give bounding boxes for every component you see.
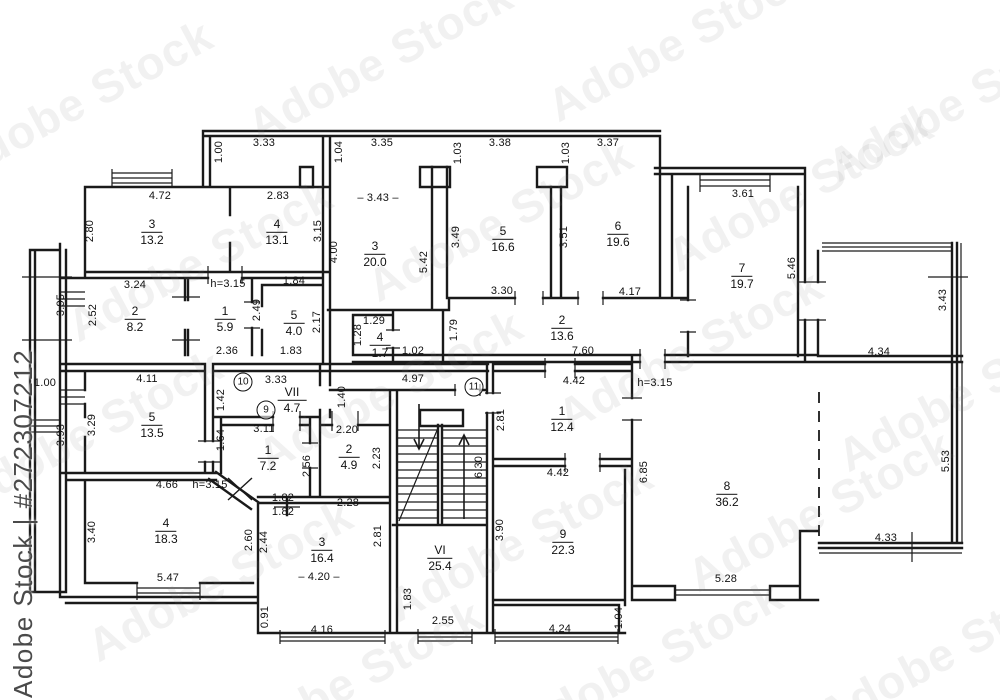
room-number: 7 [732,262,753,277]
dimension-label: 5.46 [786,257,798,279]
node-marker: 10 [234,373,253,392]
room-area: 19.7 [730,277,753,291]
room-number: 1 [215,305,236,320]
dimension-label: 1.28 [352,324,364,346]
room-label: 320.0 [363,238,386,268]
room-number: 1 [552,405,573,420]
dimension-label: 1.00 [213,141,225,163]
dimension-label: 4.42 [563,375,585,387]
dimension-label: 3.90 [494,519,506,541]
dimension-label: 5.42 [418,251,430,273]
room-area: 4.7 [278,401,307,415]
dimension-label: 2.83 [267,190,289,202]
room-area: 20.0 [363,255,386,269]
dimension-label: 3.49 [450,226,462,248]
dimension-label: 1.29 [363,315,385,327]
node-marker: 11 [465,378,484,397]
dimension-label: 2.55 [432,615,454,627]
dimension-label: 1.04 [613,607,625,629]
room-number: 8 [717,480,738,495]
room-label: 313.2 [140,216,163,246]
room-number: 1 [258,444,279,459]
room-label: 28.2 [125,303,146,333]
dimension-label: 4.11 [136,373,157,385]
dimension-label: 6.85 [638,461,650,483]
room-area: 4.9 [339,458,360,472]
room-area: 25.4 [427,559,452,573]
dimension-label: 1.04 [333,141,345,163]
room-label: 418.3 [154,515,177,545]
dimension-label: 3.51 [558,226,570,248]
dimension-label: 2.28 [337,497,359,509]
room-number: 3 [365,240,386,255]
dimension-label: – 3.43 – [357,192,398,204]
dimension-label: 1.64 [215,429,227,451]
dimension-label: 1.03 [560,142,572,164]
dimension-label: 2.36 [216,345,238,357]
dimension-label: 2.20 [336,424,358,436]
room-label: 619.6 [606,218,629,248]
dimension-label: – 4.20 – [298,571,339,583]
room-area: 18.3 [154,532,177,546]
label-layer: 3.331.003.351.043.381.033.371.034.722.83… [0,0,1000,700]
dimension-label: 4.24 [549,623,571,635]
room-number: 3 [142,218,163,233]
dimension-label: 3.33 [253,137,275,149]
room-number: 2 [552,314,573,329]
dimension-label: 2.81 [372,525,384,547]
dimension-label: 2.23 [371,447,383,469]
room-area: 5.9 [215,320,236,334]
room-area: 13.5 [140,426,163,440]
room-label: VII4.7 [278,384,307,414]
dimension-label: 1.83 [280,345,302,357]
dimension-label: 2.44 [258,531,270,553]
room-label: 213.6 [550,312,573,342]
dimension-label: 4.72 [149,190,171,202]
dimension-label: 1.02 [402,345,424,357]
dimension-label: 1.03 [452,142,464,164]
room-area: 16.6 [491,240,514,254]
room-label: VI25.4 [427,542,452,572]
dimension-label: 4.17 [619,286,641,298]
room-number: 4 [156,517,177,532]
dimension-label: 0.91 [259,606,271,628]
dimension-label: 1.79 [448,319,460,341]
room-area: 13.1 [265,233,288,247]
room-area: 13.2 [140,233,163,247]
room-label: 513.5 [140,409,163,439]
room-number: 2 [339,443,360,458]
dimension-label: 3.37 [597,137,619,149]
dimension-label: 1.83 [402,588,414,610]
dimension-label: h=3.15 [637,377,672,389]
dimension-label: 4.42 [547,467,569,479]
room-number: 5 [142,411,163,426]
dimension-label: 3.95 [55,294,67,316]
room-number: 5 [284,309,305,324]
dimension-label: 3.29 [86,414,98,436]
dimension-label: 1.84 [283,275,305,287]
room-area: 7.2 [258,459,279,473]
room-label: 24.9 [339,441,360,471]
dimension-label: 4.16 [311,624,333,636]
dimension-label: 1.82 [272,506,294,518]
room-area: 16.4 [310,551,333,565]
dimension-label: h=3.15 [192,479,227,491]
room-label: 316.4 [310,534,333,564]
room-label: 922.3 [551,526,574,556]
room-area: 8.2 [125,320,146,334]
room-number: 3 [312,536,333,551]
room-number: VII [278,386,307,401]
dimension-label: 5.53 [940,450,952,472]
dimension-label: 4.97 [402,373,424,385]
dimension-label: 2.49 [251,299,263,321]
dimension-label: 3.30 [491,285,513,297]
room-number: 9 [553,528,574,543]
dimension-label: 1.82 [272,492,294,504]
dimension-label: 2.56 [301,455,313,477]
room-number: 6 [608,220,629,235]
room-number: 4 [370,331,391,346]
dimension-label: 3.38 [489,137,511,149]
dimension-label: 2.52 [87,304,99,326]
room-area: 19.6 [606,235,629,249]
room-label: 54.0 [284,307,305,337]
room-area: 36.2 [715,495,738,509]
dimension-label: 1.42 [215,389,227,411]
floor-plan-stock-image: Adobe StockAdobe StockAdobe StockAdobe S… [0,0,1000,700]
room-label: 836.2 [715,478,738,508]
dimension-label: 2.17 [311,311,323,333]
dimension-label: 3.93 [55,424,67,446]
dimension-label: 3.40 [86,521,98,543]
room-area: 4.0 [284,324,305,338]
room-number: 5 [493,225,514,240]
room-label: 17.2 [258,442,279,472]
room-number: 2 [125,305,146,320]
room-area: 22.3 [551,543,574,557]
dimension-label: 5.28 [715,573,737,585]
room-area: 1.7 [370,346,391,360]
dimension-label: 6.30 [473,456,485,478]
room-label: 15.9 [215,303,236,333]
dimension-label: 3.61 [732,188,754,200]
dimension-label: 5.47 [157,572,179,584]
dimension-label: 3.24 [124,279,146,291]
dimension-label: 3.43 [937,289,949,311]
stock-watermark-text: Adobe Stock | #272307212 [8,349,39,698]
node-marker: 9 [257,401,276,420]
dimension-label: 3.35 [371,137,393,149]
dimension-label: 2.81 [495,409,507,431]
room-area: 12.4 [550,420,573,434]
room-area: 13.6 [550,329,573,343]
dimension-label: 4.66 [156,479,178,491]
dimension-label: 2.80 [84,220,96,242]
room-label: 41.7 [370,329,391,359]
room-number: VI [427,544,452,559]
room-label: 413.1 [265,216,288,246]
room-label: 516.6 [491,223,514,253]
dimension-label: h=3.15 [210,278,245,290]
dimension-label: 3.11 [253,423,274,435]
dimension-label: 4.00 [328,241,340,263]
room-label: 112.4 [550,403,573,433]
dimension-label: 4.34 [868,346,890,358]
room-number: 4 [267,218,288,233]
dimension-label: 3.15 [312,220,324,242]
room-label: 719.7 [730,260,753,290]
dimension-label: 4.33 [875,532,897,544]
dimension-label: 7.60 [572,345,594,357]
dimension-label: 1.40 [336,386,348,408]
dimension-label: 2.60 [243,529,255,551]
